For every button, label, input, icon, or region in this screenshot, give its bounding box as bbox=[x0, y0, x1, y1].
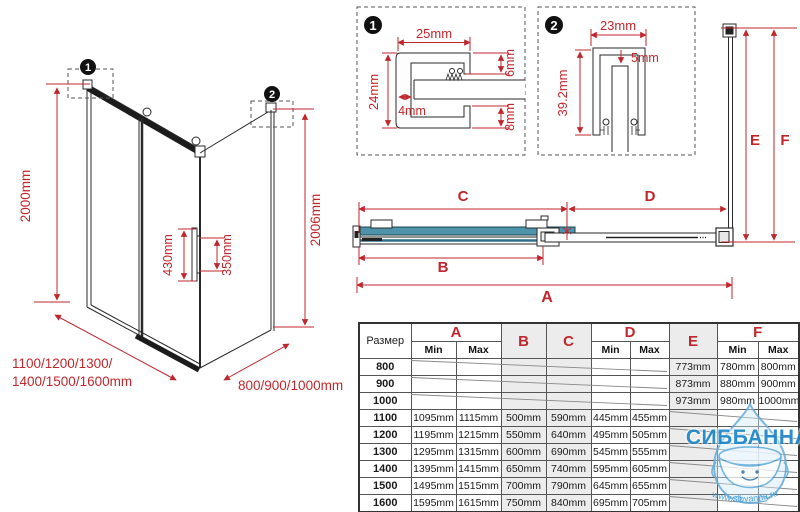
dim-height-right: 2006mm bbox=[308, 194, 323, 247]
table-row: 14001395mm1415mm650mm740mm595mm605mm bbox=[359, 461, 799, 478]
value-cell: 1495mm bbox=[411, 478, 456, 495]
table-row: 1000973mm980mm1000mm bbox=[359, 393, 799, 410]
value-cell bbox=[546, 393, 591, 410]
iso-dimensions bbox=[34, 84, 314, 380]
column-header-c: C bbox=[546, 323, 591, 359]
value-cell bbox=[717, 461, 758, 478]
value-cell bbox=[591, 393, 630, 410]
table-row: 13001295mm1315mm600mm690mm545mm555mm bbox=[359, 444, 799, 461]
detail-1-number: 1 bbox=[369, 18, 376, 33]
value-cell: 500mm bbox=[501, 410, 546, 427]
value-cell bbox=[669, 461, 717, 478]
value-cell: 495mm bbox=[591, 427, 630, 444]
size-table-body: 800773mm780mm800mm900873mm880mm900mm1000… bbox=[359, 359, 799, 512]
subheader-a-min: Min bbox=[411, 342, 456, 359]
value-cell bbox=[630, 359, 669, 376]
column-header-e: E bbox=[669, 323, 717, 359]
dim-d2-gap: 5mm bbox=[631, 51, 659, 65]
iso-view bbox=[83, 80, 276, 370]
value-cell: 455mm bbox=[630, 410, 669, 427]
value-cell bbox=[669, 410, 717, 427]
detail-view-1: 1 25mm 24mm 6mm 4mm 8mm bbox=[357, 7, 525, 155]
value-cell: 555mm bbox=[630, 444, 669, 461]
size-cell: 800 bbox=[359, 359, 411, 376]
value-cell bbox=[591, 359, 630, 376]
size-cell: 1500 bbox=[359, 478, 411, 495]
size-cell: 1400 bbox=[359, 461, 411, 478]
seal-brush bbox=[631, 119, 637, 125]
value-cell bbox=[501, 359, 546, 376]
value-cell: 1595mm bbox=[411, 495, 456, 512]
table-row: 11001095mm1115mm500mm590mm445mm455mm bbox=[359, 410, 799, 427]
value-cell bbox=[411, 393, 456, 410]
value-cell: 600mm bbox=[501, 444, 546, 461]
value-cell bbox=[411, 359, 456, 376]
size-cell: 1200 bbox=[359, 427, 411, 444]
subheader-d-min: Min bbox=[591, 342, 630, 359]
value-cell bbox=[717, 410, 758, 427]
value-cell: 900mm bbox=[758, 376, 799, 393]
value-cell bbox=[669, 495, 717, 512]
roller-icon bbox=[192, 137, 200, 145]
value-cell bbox=[717, 495, 758, 512]
value-cell bbox=[630, 393, 669, 410]
detail-2-number: 2 bbox=[550, 18, 557, 33]
value-cell bbox=[501, 393, 546, 410]
value-cell: 655mm bbox=[630, 478, 669, 495]
value-cell: 690mm bbox=[546, 444, 591, 461]
dim-handle-outer: 430mm bbox=[161, 234, 175, 276]
value-cell bbox=[669, 478, 717, 495]
value-cell bbox=[669, 427, 717, 444]
depth-options: 800/900/1000mm bbox=[238, 378, 343, 393]
value-cell: 873mm bbox=[669, 376, 717, 393]
value-cell bbox=[758, 427, 799, 444]
door-handle bbox=[192, 228, 197, 281]
table-row: 12001195mm1215mm550mm640mm495mm505mm bbox=[359, 427, 799, 444]
value-cell: 740mm bbox=[546, 461, 591, 478]
value-cell: 605mm bbox=[630, 461, 669, 478]
size-cell: 1300 bbox=[359, 444, 411, 461]
column-header-a: A bbox=[411, 323, 501, 342]
callout-2-number: 2 bbox=[269, 89, 275, 101]
dim-d2-width: 23mm bbox=[600, 18, 636, 33]
dim-d1-width: 25mm bbox=[416, 26, 452, 41]
plan-dimension-labels: C D B A E F bbox=[438, 132, 790, 306]
roller-bracket bbox=[526, 220, 547, 228]
column-header-b: B bbox=[501, 323, 546, 359]
dim-label-e: E bbox=[750, 132, 760, 149]
value-cell bbox=[758, 495, 799, 512]
value-cell bbox=[717, 478, 758, 495]
value-cell bbox=[501, 376, 546, 393]
dim-label-b: B bbox=[438, 259, 449, 276]
subheader-f-max: Max bbox=[758, 342, 799, 359]
value-cell: 980mm bbox=[717, 393, 758, 410]
value-cell: 1295mm bbox=[411, 444, 456, 461]
roller-bracket bbox=[371, 220, 392, 228]
value-cell: 545mm bbox=[591, 444, 630, 461]
value-cell bbox=[717, 444, 758, 461]
value-cell: 645mm bbox=[591, 478, 630, 495]
dim-label-a: A bbox=[541, 289, 553, 306]
value-cell: 590mm bbox=[546, 410, 591, 427]
value-cell: 880mm bbox=[717, 376, 758, 393]
value-cell: 1395mm bbox=[411, 461, 456, 478]
dim-label-d: D bbox=[645, 188, 656, 205]
size-cell: 900 bbox=[359, 376, 411, 393]
value-cell: 700mm bbox=[501, 478, 546, 495]
value-cell: 1615mm bbox=[456, 495, 501, 512]
value-cell: 705mm bbox=[630, 495, 669, 512]
detail-view-2: 2 23mm 5mm 39.2mm bbox=[538, 7, 695, 155]
value-cell: 650mm bbox=[501, 461, 546, 478]
width-options-line1: 1100/1200/1300/ bbox=[12, 356, 113, 371]
value-cell bbox=[758, 410, 799, 427]
value-cell: 445mm bbox=[591, 410, 630, 427]
size-table: Размер A B C D E F Min Max Min Max Min M… bbox=[358, 322, 800, 512]
value-cell bbox=[669, 444, 717, 461]
value-cell: 750mm bbox=[501, 495, 546, 512]
subheader-d-max: Max bbox=[630, 342, 669, 359]
subheader-f-min: Min bbox=[717, 342, 758, 359]
plan-dimensions bbox=[357, 28, 797, 299]
value-cell: 1515mm bbox=[456, 478, 501, 495]
roller-icon bbox=[143, 108, 151, 116]
seal-brush bbox=[446, 74, 462, 80]
dim-d2-height: 39.2mm bbox=[555, 70, 570, 117]
table-row: 800773mm780mm800mm bbox=[359, 359, 799, 376]
value-cell: 1215mm bbox=[456, 427, 501, 444]
value-cell: 800mm bbox=[758, 359, 799, 376]
value-cell: 840mm bbox=[546, 495, 591, 512]
value-cell: 505mm bbox=[630, 427, 669, 444]
size-cell: 1600 bbox=[359, 495, 411, 512]
value-cell bbox=[546, 359, 591, 376]
value-cell: 595mm bbox=[591, 461, 630, 478]
value-cell bbox=[717, 427, 758, 444]
table-row: 900873mm880mm900mm bbox=[359, 376, 799, 393]
value-cell: 1315mm bbox=[456, 444, 501, 461]
value-cell bbox=[546, 376, 591, 393]
value-cell bbox=[411, 376, 456, 393]
value-cell: 1415mm bbox=[456, 461, 501, 478]
dim-d1-wall: 4mm bbox=[398, 104, 426, 118]
value-cell: 550mm bbox=[501, 427, 546, 444]
shower-enclosure-spec-sheet: 1 2 2000mm 2006mm 430mm 350mm 1100/1200/… bbox=[0, 0, 800, 512]
value-cell: 773mm bbox=[669, 359, 717, 376]
column-header-d: D bbox=[591, 323, 669, 342]
seal-brush bbox=[603, 119, 609, 125]
value-cell: 973mm bbox=[669, 393, 717, 410]
size-cell: 1000 bbox=[359, 393, 411, 410]
value-cell bbox=[456, 376, 501, 393]
value-cell: 1115mm bbox=[456, 410, 501, 427]
column-header-size: Размер bbox=[359, 323, 411, 359]
value-cell bbox=[758, 478, 799, 495]
dim-label-f: F bbox=[780, 132, 789, 149]
dim-d1-bottom: 8mm bbox=[503, 103, 517, 131]
value-cell: 1000mm bbox=[758, 393, 799, 410]
value-cell: 780mm bbox=[717, 359, 758, 376]
value-cell: 790mm bbox=[546, 478, 591, 495]
value-cell bbox=[456, 393, 501, 410]
value-cell bbox=[630, 376, 669, 393]
dim-label-c: C bbox=[458, 188, 469, 205]
value-cell bbox=[758, 444, 799, 461]
value-cell bbox=[591, 376, 630, 393]
dim-d1-top: 6mm bbox=[503, 49, 517, 77]
callout-1-number: 1 bbox=[85, 62, 91, 74]
value-cell: 695mm bbox=[591, 495, 630, 512]
value-cell bbox=[758, 461, 799, 478]
value-cell: 1195mm bbox=[411, 427, 456, 444]
value-cell bbox=[456, 359, 501, 376]
column-header-f: F bbox=[717, 323, 799, 342]
value-cell: 640mm bbox=[546, 427, 591, 444]
size-cell: 1100 bbox=[359, 410, 411, 427]
dim-d1-height: 24mm bbox=[366, 74, 381, 110]
table-row: 16001595mm1615mm750mm840mm695mm705mm bbox=[359, 495, 799, 512]
width-options-line2: 1400/1500/1600mm bbox=[12, 374, 132, 389]
dim-handle-inner: 350mm bbox=[220, 234, 234, 276]
subheader-a-max: Max bbox=[456, 342, 501, 359]
table-row: 15001495mm1515mm700mm790mm645mm655mm bbox=[359, 478, 799, 495]
value-cell: 1095mm bbox=[411, 410, 456, 427]
dim-height-left: 2000mm bbox=[18, 170, 33, 223]
